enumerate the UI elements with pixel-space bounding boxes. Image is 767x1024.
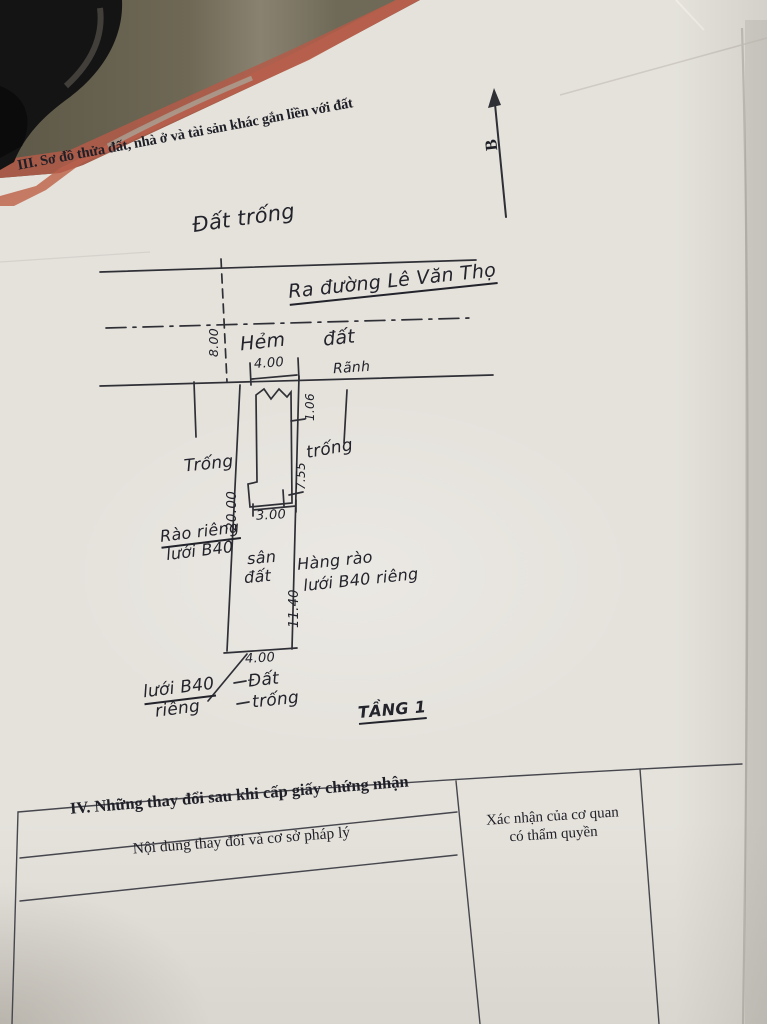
north-arrow: [488, 88, 506, 217]
label-hem: Hẻm: [239, 329, 286, 356]
left-neighbor-line: [194, 382, 196, 437]
dim-house-width: 3.00: [256, 507, 287, 524]
label-dat-mid: đất: [243, 566, 272, 587]
north-arrow-shaft: [495, 104, 506, 217]
dim-seg-mid: 7.55: [294, 462, 308, 490]
dim-back-width: 4.00: [245, 650, 276, 667]
lot-front-line: [100, 375, 493, 386]
photographed-document: III. Sơ đồ thửa đất, nhà ở và tài sản kh…: [0, 0, 767, 1024]
dim-seg-bottom: 11.40: [287, 589, 302, 628]
dim-seg-top: 1.06: [303, 393, 317, 421]
dim-alley-width: 8.00: [206, 328, 221, 357]
north-arrow-head: [488, 88, 501, 108]
building-door-tick: [283, 490, 284, 506]
alley-center-line: [221, 259, 227, 382]
label-san: sân: [246, 547, 277, 568]
north-label: B: [481, 138, 502, 151]
label-dashes: [234, 681, 249, 704]
street-center-line: [106, 318, 470, 328]
table-left-border: [12, 812, 18, 1024]
label-ranh: Rãnh: [332, 359, 370, 378]
table-right-border: [640, 769, 659, 1024]
cadastral-sketch: [0, 0, 767, 780]
label-dat-alley: đất: [322, 325, 356, 350]
label-dat-bottom: Đất: [247, 668, 280, 691]
dim-front-width: 4.00: [254, 355, 285, 372]
building-outline: [248, 389, 292, 507]
